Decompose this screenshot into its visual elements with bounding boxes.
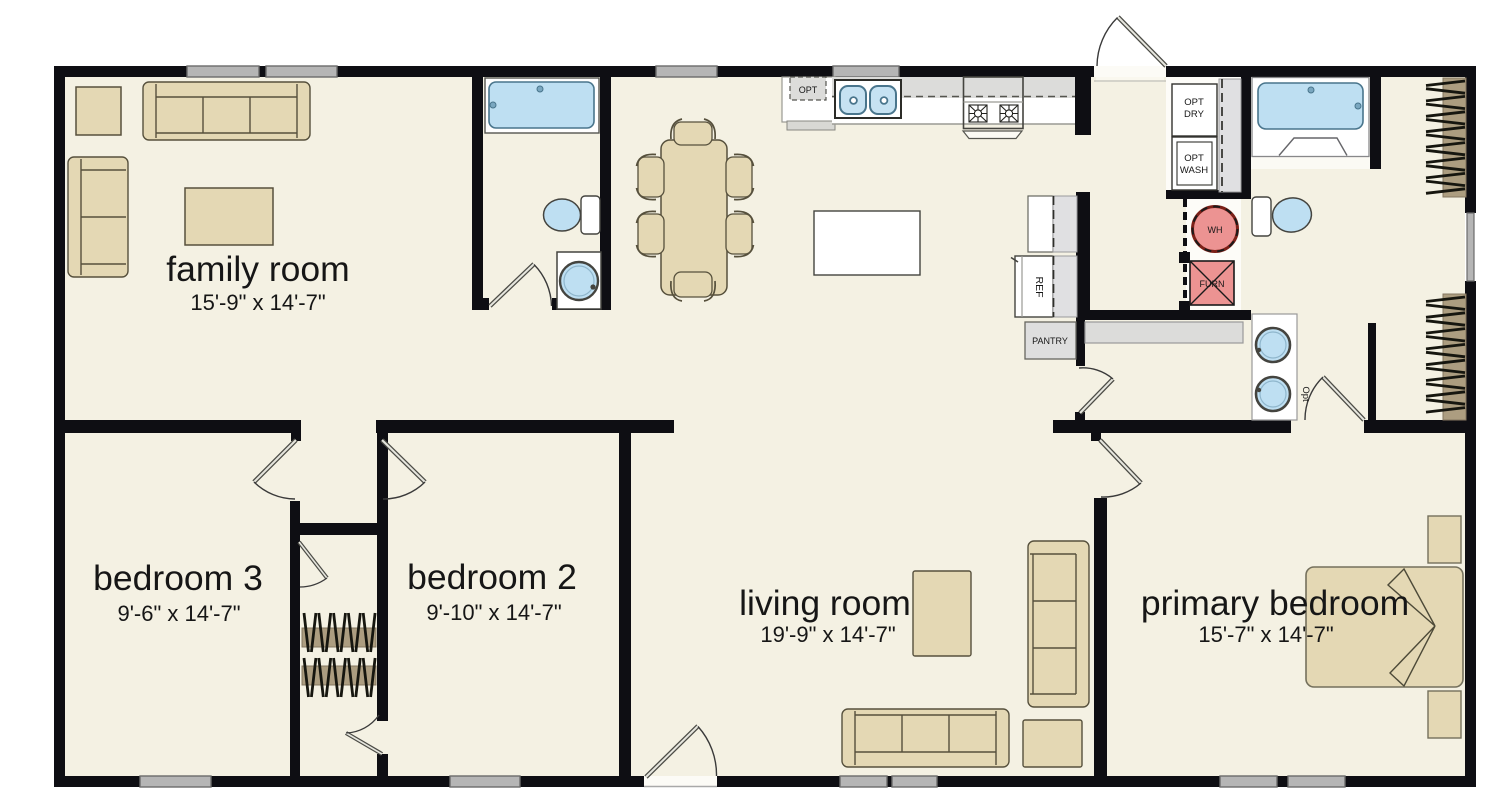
- svg-text:bedroom 2: bedroom 2: [407, 557, 577, 597]
- svg-text:OPT: OPT: [1184, 97, 1204, 108]
- svg-text:OPT: OPT: [1184, 153, 1204, 164]
- svg-text:primary bedroom: primary bedroom: [1141, 583, 1409, 623]
- svg-text:WASH: WASH: [1180, 165, 1208, 176]
- svg-text:FURN: FURN: [1200, 279, 1225, 289]
- svg-text:WH: WH: [1208, 225, 1223, 235]
- svg-text:PANTRY: PANTRY: [1032, 336, 1068, 346]
- svg-text:DRY: DRY: [1184, 109, 1205, 120]
- svg-text:living room: living room: [739, 583, 911, 623]
- svg-text:9'-6" x 14'-7": 9'-6" x 14'-7": [117, 601, 240, 626]
- svg-text:15'-9" x 14'-7": 15'-9" x 14'-7": [190, 290, 325, 315]
- svg-text:15'-7" x 14'-7": 15'-7" x 14'-7": [1198, 622, 1333, 647]
- svg-text:OPT: OPT: [799, 85, 818, 95]
- svg-text:family room: family room: [166, 249, 349, 289]
- svg-text:19'-9" x 14'-7": 19'-9" x 14'-7": [760, 622, 895, 647]
- svg-text:REF: REF: [1033, 277, 1045, 298]
- svg-text:9'-10" x 14'-7": 9'-10" x 14'-7": [426, 600, 561, 625]
- svg-text:bedroom 3: bedroom 3: [93, 558, 263, 598]
- svg-text:Opt: Opt: [1300, 386, 1311, 402]
